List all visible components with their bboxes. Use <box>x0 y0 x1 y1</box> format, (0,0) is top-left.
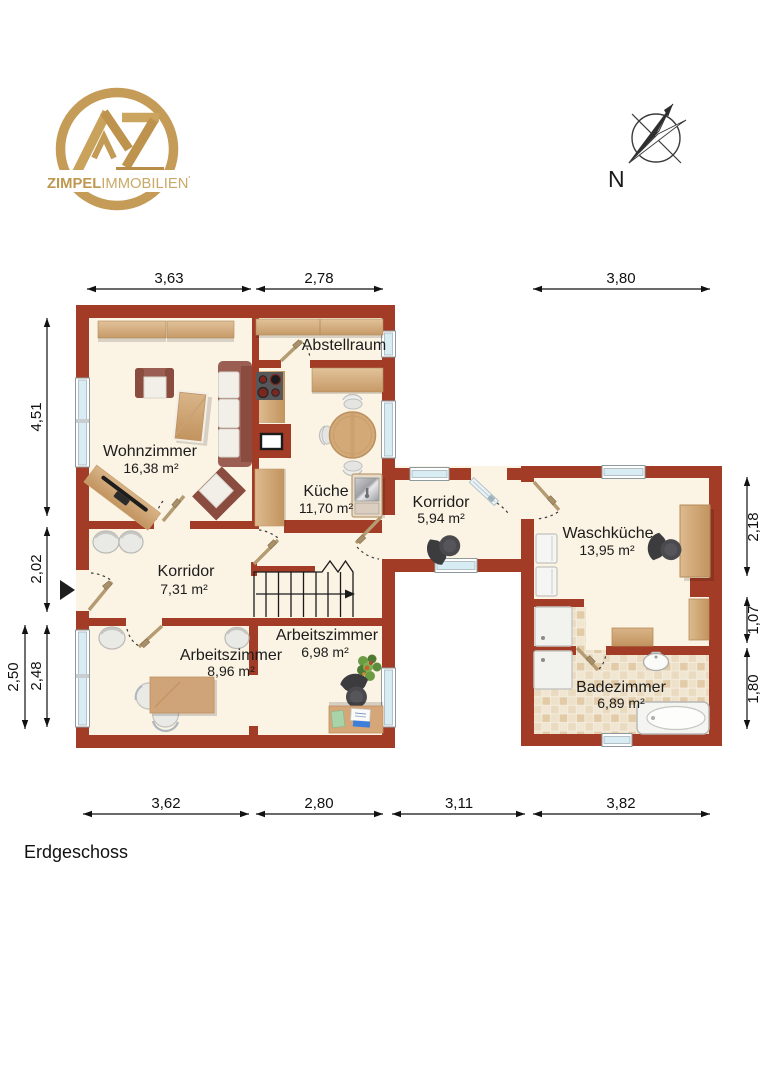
svg-text:6,89 m²: 6,89 m² <box>597 695 645 711</box>
svg-text:ZIMPELIMMOBILIEN': ZIMPELIMMOBILIEN' <box>47 176 190 192</box>
svg-text:Badezimmer: Badezimmer <box>576 679 666 696</box>
svg-text:Wohnzimmer: Wohnzimmer <box>103 443 198 460</box>
svg-text:Korridor: Korridor <box>158 563 216 580</box>
svg-text:16,38 m²: 16,38 m² <box>123 460 179 476</box>
svg-text:4,51: 4,51 <box>28 402 45 431</box>
svg-text:2,18: 2,18 <box>745 512 762 541</box>
svg-text:Erdgeschoss: Erdgeschoss <box>24 842 128 862</box>
svg-text:3,62: 3,62 <box>151 795 180 812</box>
svg-text:1,80: 1,80 <box>745 674 762 703</box>
svg-text:3,11: 3,11 <box>445 795 473 812</box>
svg-text:13,95 m²: 13,95 m² <box>579 542 635 558</box>
svg-text:2,80: 2,80 <box>304 795 333 812</box>
svg-text:Korridor: Korridor <box>413 494 471 511</box>
svg-text:8,96 m²: 8,96 m² <box>207 663 255 679</box>
svg-text:Waschküche: Waschküche <box>563 525 654 542</box>
svg-text:5,94 m²: 5,94 m² <box>417 510 465 526</box>
svg-text:2,78: 2,78 <box>304 270 333 287</box>
svg-text:11,70 m²: 11,70 m² <box>299 500 354 516</box>
svg-text:2,50: 2,50 <box>5 662 22 691</box>
svg-text:6,98 m²: 6,98 m² <box>301 644 349 660</box>
svg-text:N: N <box>608 166 625 192</box>
svg-text:2,02: 2,02 <box>28 554 45 583</box>
svg-text:2,48: 2,48 <box>28 661 45 690</box>
svg-text:3,63: 3,63 <box>154 270 183 287</box>
svg-text:3,82: 3,82 <box>606 795 635 812</box>
svg-text:Küche: Küche <box>303 483 348 500</box>
svg-text:7,31 m²: 7,31 m² <box>160 581 208 597</box>
svg-text:1,07: 1,07 <box>745 605 762 634</box>
svg-text:Abstellraum: Abstellraum <box>302 337 386 354</box>
svg-text:Arbeitszimmer: Arbeitszimmer <box>276 627 379 644</box>
svg-text:Arbeitszimmer: Arbeitszimmer <box>180 647 283 664</box>
svg-text:3,80: 3,80 <box>606 270 635 287</box>
